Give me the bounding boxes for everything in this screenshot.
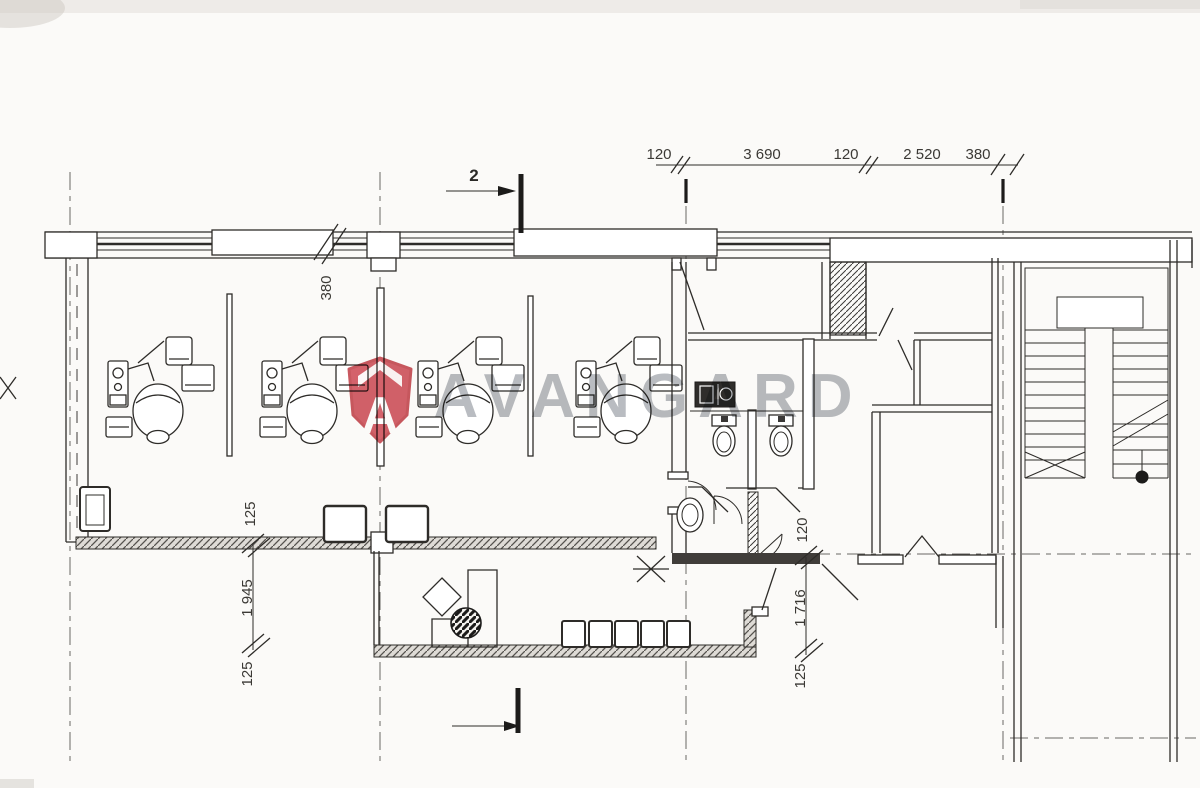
dim-label: 120 xyxy=(646,146,671,163)
stair-start-dot xyxy=(1136,471,1149,484)
stairs-left-flight xyxy=(1025,330,1085,478)
dim-label: 1 945 xyxy=(239,579,256,617)
right-dimension-chain: 120 1 716 125 xyxy=(792,517,823,688)
vent-shaft xyxy=(822,262,866,339)
dim-label: 120 xyxy=(833,146,858,163)
dim-label: 1 716 xyxy=(792,589,809,627)
stairwell xyxy=(1014,240,1192,762)
door-leaf xyxy=(822,564,858,600)
asterisk-symbol xyxy=(633,556,669,582)
top-exterior-wall xyxy=(45,224,1192,330)
dim-label: 125 xyxy=(242,501,259,526)
dental-unit-1 xyxy=(106,337,214,444)
stair-landing xyxy=(1057,297,1143,328)
partition-panel-1 xyxy=(227,294,232,456)
window-band xyxy=(97,238,830,250)
dim-label: 380 xyxy=(965,146,990,163)
watermark-brand-text: AVANGARD xyxy=(433,362,862,431)
double-door xyxy=(879,308,912,370)
plumbing-wall xyxy=(748,492,758,558)
top-dimension-chain: 120 3 690 120 2 520 380 xyxy=(646,146,1024,175)
watermark-logo: A xyxy=(349,358,411,445)
stairs-right-flight xyxy=(1113,330,1168,484)
grid-end-markers xyxy=(686,179,1003,203)
section-marker-top: 2 xyxy=(446,166,521,233)
radiator xyxy=(80,487,110,531)
entry-door xyxy=(672,258,716,330)
section-marker-bottom xyxy=(452,688,520,733)
dim-label: 3 690 xyxy=(743,146,781,163)
logo-letter: A xyxy=(361,387,399,445)
axis-cross-symbol xyxy=(0,377,16,399)
left-dimension-chain: 125 1 945 125 xyxy=(239,501,270,686)
floorplan-drawing: 380 xyxy=(0,0,1200,788)
floorplan-scan: 380 xyxy=(0,0,1200,788)
dim-label: 2 520 xyxy=(903,146,941,163)
dim-label: 125 xyxy=(792,663,809,688)
dim-label: 125 xyxy=(239,661,256,686)
wash-basin xyxy=(677,496,742,532)
waiting-chairs xyxy=(562,621,690,647)
wall-thickness-label: 380 xyxy=(318,275,335,300)
office-chair xyxy=(451,608,481,638)
section-number: 2 xyxy=(469,166,478,185)
side-stool xyxy=(423,578,461,616)
dim-label: 120 xyxy=(794,517,811,542)
